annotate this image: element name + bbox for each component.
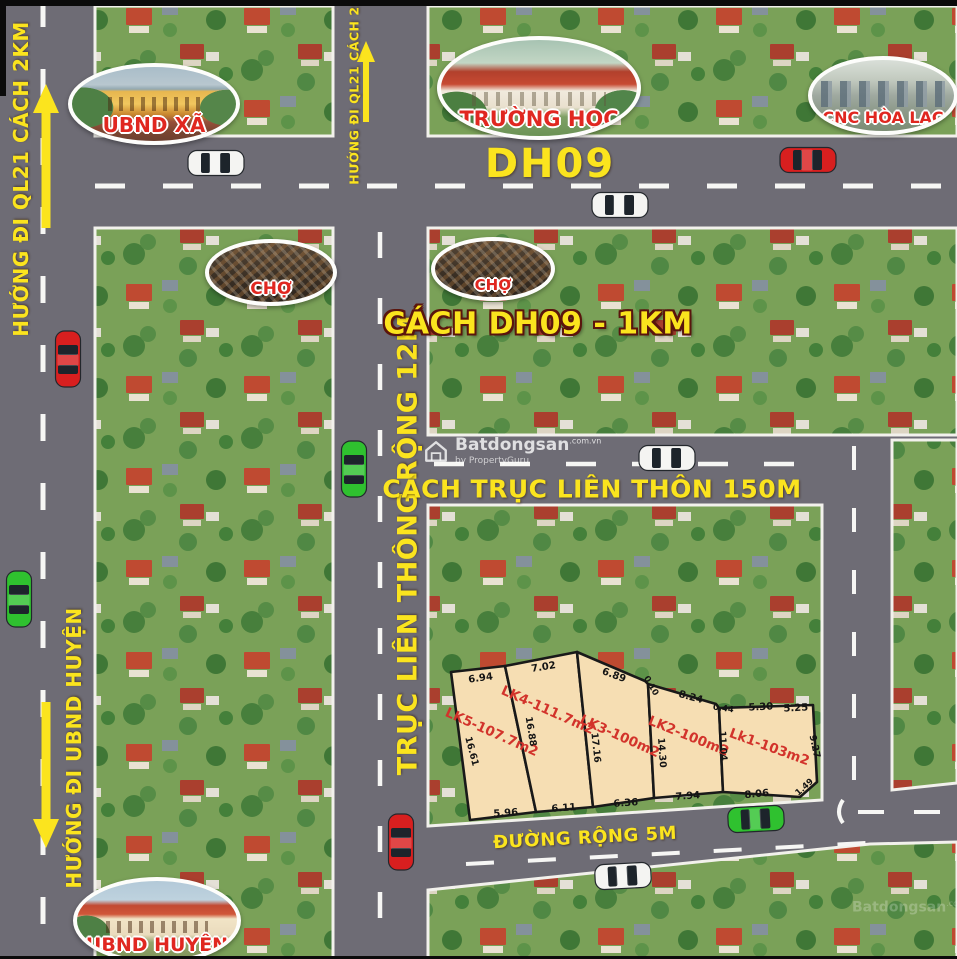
- landmark-ubnd-huyen: UBND HUYỆN: [73, 877, 241, 959]
- plot-dimension: 5.96: [493, 807, 518, 820]
- plot-dimension: 8.06: [744, 788, 770, 801]
- junction-turn-mark: [839, 800, 843, 823]
- landmark-label: UBND XÃ: [72, 113, 236, 137]
- building-windows: [472, 92, 605, 106]
- distance-label-village-axis: CÁCH TRỤC LIÊN THÔN 150M: [382, 475, 801, 504]
- landmark-label: UBND HUYỆN: [77, 934, 237, 956]
- car-red: [389, 814, 414, 870]
- watermark-brand: Batdongsan: [852, 900, 946, 916]
- watermark-domain: .com.vn: [569, 436, 601, 445]
- watermark-brand: Batdongsan: [455, 435, 569, 455]
- landmark-label: CHỢ: [209, 279, 333, 299]
- road-label-main-axis: TRỤC LIÊN THÔNG RỘNG 12M: [393, 315, 424, 776]
- direction-label-ql21-mid: HƯỚNG ĐI QL21 CÁCH 2KM: [347, 0, 362, 185]
- watermark-batdongsan: Batdongsan.com.vn by PropertyGuru: [423, 437, 601, 466]
- arrow-up-left-road: [33, 84, 59, 228]
- plot-dimension: 7.94: [675, 790, 700, 803]
- watermark-domain: .com.vn: [946, 899, 957, 908]
- aerial-block-mid-left: [95, 228, 333, 959]
- landmark-label: CNC HÒA LẠC: [812, 108, 954, 127]
- watermark-byline: by PropertyGuru: [455, 456, 601, 466]
- arrow-down-left-road: [33, 702, 59, 848]
- landmark-cho-1: CHỢ: [205, 239, 337, 306]
- building-windows: [108, 97, 200, 112]
- car-green: [342, 441, 367, 497]
- batdongsan-logo-icon: [423, 439, 449, 465]
- top-edge-bar: [0, 0, 957, 6]
- car-green: [727, 805, 784, 833]
- building-windows: [106, 921, 208, 934]
- plot-dimension: 5.30: [748, 701, 773, 713]
- plot-dimension: 5.25: [783, 702, 808, 714]
- plot-dimension: 6.11: [551, 802, 576, 815]
- landmark-ubnd-xa: UBND XÃ: [68, 63, 240, 145]
- landmark-label: CHỢ: [435, 276, 551, 294]
- plot-dimension: 14.30: [655, 737, 668, 768]
- car-white: [592, 193, 648, 218]
- direction-label-ql21-left: HƯỚNG ĐI QL21 CÁCH 2KM: [9, 21, 33, 337]
- plot-dimension: 6.36: [613, 797, 638, 810]
- car-green: [7, 571, 32, 627]
- landmark-cho-2: CHỢ: [431, 237, 555, 301]
- road-label-dh09: DH09: [485, 141, 615, 187]
- watermark-batdongsan-corner: Batdongsan.com.vn: [852, 900, 957, 915]
- car-white: [639, 446, 695, 471]
- car-white: [188, 151, 244, 176]
- direction-label-ubnd-huyen: HƯỚNG ĐI UBND HUYỆN: [62, 607, 86, 888]
- car-red: [780, 148, 836, 173]
- car-white: [594, 862, 651, 890]
- car-red: [56, 331, 81, 387]
- aerial-block-right-strip: [892, 440, 957, 790]
- left-edge-bar: [0, 0, 6, 96]
- landmark-label: TRƯỜNG HỌC: [441, 107, 637, 131]
- distance-label-dh09: CÁCH DH09 - 1KM: [383, 307, 692, 342]
- plot-dimension: 11.04: [716, 731, 729, 762]
- landmark-truong-hoc: TRƯỜNG HỌC: [437, 36, 641, 140]
- landmark-cnc-hoa-lac: CNC HÒA LẠC: [808, 56, 957, 135]
- real-estate-map: LK5-107.7m2 LK4-111.7m2 LK3-100m2 LK2-10…: [0, 0, 957, 959]
- city-towers: [821, 81, 946, 107]
